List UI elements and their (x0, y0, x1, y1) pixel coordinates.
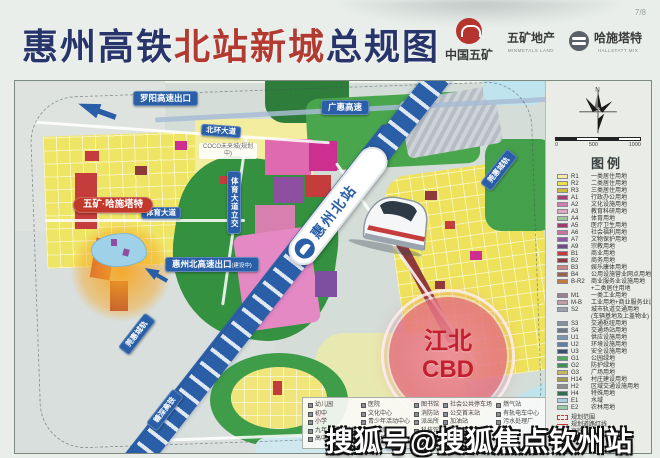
legend-swatch (557, 384, 568, 389)
minmetals-logo: 中国五矿 (445, 18, 493, 63)
facility-item: 燃气站 (496, 402, 539, 410)
legend-code: A3 (571, 209, 588, 215)
minmetals-land-logo: 五矿地产 MINMETALS LAND (507, 29, 555, 53)
legend-item: B-R2 商业服务业设施用地 (557, 278, 652, 285)
legend-item: A1 行政办公用地 (557, 194, 652, 201)
legend-label: 交通场站用地 (591, 328, 627, 334)
legend-item: B1 商业用地 (557, 250, 652, 257)
legend-label: 村庄建设用地 (591, 377, 627, 383)
facility-item: 初中 (308, 411, 357, 419)
facility-icon (361, 403, 366, 408)
minmetals-emblem-icon (456, 18, 482, 44)
legend-item: U2 环境设施用地 (557, 341, 652, 348)
legend-item: E1 水域 (557, 397, 652, 404)
legend-swatch (557, 349, 568, 354)
legend-label: 一类工业用地 (591, 293, 627, 299)
scale-bar: 0 500 1000 (555, 137, 641, 148)
legend-code: H14 (571, 377, 588, 383)
label-north-exit: 惠州北高速出口(建设中) (165, 257, 259, 272)
facility-icon (308, 437, 313, 442)
legend-item: A4 体育用地 (557, 215, 652, 222)
legend-code: A5 (571, 223, 588, 229)
facility-icon (308, 420, 313, 425)
legend-swatch (557, 405, 568, 410)
legend-swatch (557, 335, 568, 340)
legend-item: H2 区域交通设施用地 (557, 383, 652, 390)
legend-label: +二类居住用地 (591, 286, 631, 292)
facility-item: 幼儿园 (308, 402, 357, 410)
scale-500: 500 (589, 142, 598, 148)
legend-swatch (557, 370, 568, 375)
legend-label: 公园绿地 (591, 356, 615, 362)
screenshot-root: 惠州高铁北站新城总规图 7/8 中国五矿 五矿地产 MINMETALS LAND… (0, 0, 660, 458)
legend-item: +二类居住用地 (557, 285, 652, 292)
legend-swatch (557, 342, 568, 347)
legend-swatch (557, 181, 568, 186)
legend-label: 文物保护用地 (591, 237, 627, 243)
legend-swatch (557, 377, 568, 382)
legend-swatch (557, 244, 568, 249)
legend-title: 图例 (591, 153, 623, 172)
minmetals-land-name: 五矿地产 (507, 29, 555, 46)
facility-icon (496, 412, 501, 417)
legend-swatch (557, 188, 568, 193)
legend-item: G2 防护绿地 (557, 362, 652, 369)
legend-item: A3 教育科研用地 (557, 208, 652, 215)
legend-code: B1 (571, 251, 588, 257)
label-tiyu-interchange: 体育大道立交 (227, 171, 241, 234)
legend-item: R1 一类居住用地 (557, 173, 652, 180)
legend-code: G3 (571, 370, 588, 376)
legend-code: H4 (571, 391, 588, 397)
legend-label: 环境设施用地 (591, 342, 627, 348)
legend-item: A5 医疗卫生用地 (557, 222, 652, 229)
sohu-watermark: 搜狐号@搜狐焦点钦州站 (326, 420, 633, 458)
title-part-1: 惠州高铁 (22, 26, 174, 67)
legend-swatch (557, 174, 568, 179)
north-exit-text: 惠州北高速出口 (172, 259, 232, 269)
legend-swatch (557, 279, 568, 284)
facility-icon (443, 403, 448, 408)
scale-bar-rule (555, 137, 641, 141)
legend-label: 三类居住用地 (591, 188, 627, 194)
title-part-3: 总规图 (326, 26, 440, 67)
facility-icon (443, 412, 448, 417)
legend-code: U2 (571, 342, 588, 348)
page-indicator: 7/8 (635, 8, 646, 17)
legend-swatch (557, 328, 568, 333)
legend-code: M1 (571, 293, 588, 299)
legend-code: R1 (571, 174, 588, 180)
legend-item: A9 宗教用地 (557, 243, 652, 250)
legend-label: 行政办公用地 (591, 195, 627, 201)
legend-swatch (557, 363, 568, 368)
legend-swatch (557, 321, 568, 326)
minmetals-name: 中国五矿 (445, 46, 493, 63)
facility-item: 图书馆 (414, 402, 439, 410)
title-part-2: 北站新城 (174, 26, 326, 67)
legend-swatch (557, 272, 568, 277)
legend-code: A9 (571, 244, 588, 250)
legend-item: B3 娱乐康体用地 (557, 264, 652, 271)
hallstatt-emblem-icon (569, 31, 589, 51)
legend-label: (车辆基地及上盖物业) (591, 314, 649, 320)
legend-label: 农林用地 (591, 405, 615, 411)
north-exit-sub: (建设中) (232, 263, 252, 269)
plan-map: 江北 CBD 惠州北站 罗阳高速出口 北环大道 广惠高速 COCO未来城(规划中… (14, 80, 652, 454)
legend-item: R3 三类居住用地 (557, 187, 652, 194)
legend-label: 防护绿地 (591, 363, 615, 369)
legend-item: M-B 工业用地+商业服务业设施用地 (557, 299, 652, 306)
hallstatt-logo: 哈施塔特 HALLSTATT MIX (569, 29, 642, 53)
legend-item: (车辆基地及上盖物业) (557, 313, 652, 320)
legend-swatch (557, 202, 568, 207)
title-bar: 惠州高铁北站新城总规图 7/8 中国五矿 五矿地产 MINMETALS LAND… (0, 0, 660, 80)
legend-swatch (557, 356, 568, 361)
legend-label: 商业用地 (591, 251, 615, 257)
legend-item: S2 城市轨道交通用地 (557, 306, 652, 313)
legend-item: A6 社会福利用地 (557, 229, 652, 236)
legend-label: 商业服务业设施用地 (591, 279, 645, 285)
brand-logos: 中国五矿 五矿地产 MINMETALS LAND 哈施塔特 HALLSTATT … (445, 18, 642, 63)
legend-swatch (557, 293, 568, 298)
minmetals-land-en: MINMETALS LAND (508, 48, 554, 53)
legend-label: 二类居住用地 (591, 181, 627, 187)
legend-code: A4 (571, 216, 588, 222)
legend-item: A7 文物保护用地 (557, 236, 652, 243)
legend-item: G1 公园绿地 (557, 355, 652, 362)
facility-icon (308, 412, 313, 417)
legend-code: B4 (571, 272, 588, 278)
legend-item: S3 交通枢纽用地 (557, 320, 652, 327)
label-luoyang-exit: 罗阳高速出口 (133, 91, 198, 106)
legend-label: 工业用地+商业服务业设施用地 (591, 300, 652, 306)
legend-label: 社会福利用地 (591, 230, 627, 236)
legend-label: 供应设施用地 (591, 335, 627, 341)
facility-icon (308, 429, 313, 434)
legend-item: H14 村庄建设用地 (557, 376, 652, 383)
legend-code: B2 (571, 258, 588, 264)
legend-swatch (557, 265, 568, 270)
legend-item: M1 一类工业用地 (557, 292, 652, 299)
legend-item: U1 供应设施用地 (557, 334, 652, 341)
legend-label: 特殊用地 (591, 391, 615, 397)
legend-item: B4 公用设施营业网点用地 (557, 271, 652, 278)
train-logo-icon (291, 235, 319, 263)
legend-label: 水域 (591, 398, 603, 404)
legend-swatch (557, 398, 568, 403)
legend-label: 商务用地 (591, 258, 615, 264)
legend-code: R2 (571, 181, 588, 187)
legend-item: B2 商务用地 (557, 257, 652, 264)
legend-code: U1 (571, 335, 588, 341)
legend-swatch (557, 300, 568, 305)
hallstatt-name: 哈施塔特 (594, 29, 642, 46)
legend-label: 城市轨道交通用地 (591, 307, 639, 313)
scale-1000: 1000 (629, 142, 641, 148)
legend-item: G3 广场用地 (557, 369, 652, 376)
legend-swatch (557, 216, 568, 221)
facility-item: 消防站 (414, 411, 439, 419)
legend-code: B3 (571, 265, 588, 271)
legend-swatch (557, 230, 568, 235)
legend-code: H2 (571, 384, 588, 390)
facility-icon (414, 403, 419, 408)
legend-code: E2 (571, 405, 588, 411)
legend-item: A2 文化设施用地 (557, 201, 652, 208)
label-wukuang-hallstatt: 五矿·哈施塔特 (73, 197, 153, 213)
legend-code: B-R2 (571, 279, 588, 285)
legend-label: 娱乐康体用地 (591, 265, 627, 271)
legend-code: M-B (571, 300, 588, 306)
legend-label: 体育用地 (591, 216, 615, 222)
cbd-label-line1: 江北 (424, 328, 472, 356)
legend-items: R1 一类居住用地 R2 二类居住用地 R3 三类居住用地 A1 (557, 173, 652, 411)
facility-icon (361, 412, 366, 417)
scale-0: 0 (555, 142, 558, 148)
legend-code: S2 (571, 307, 588, 313)
legend-label: 文化设施用地 (591, 202, 627, 208)
legend-swatch (557, 195, 568, 200)
label-coco: COCO未来城(规划中) (199, 143, 257, 159)
legend-code: S4 (571, 328, 588, 334)
facility-icon (308, 403, 313, 408)
legend-code: A6 (571, 230, 588, 236)
hallstatt-en: HALLSTATT MIX (598, 48, 639, 53)
legend-item: R2 二类居住用地 (557, 180, 652, 187)
legend-code: A7 (571, 237, 588, 243)
label-guanghui-expwy: 广惠高速 (321, 100, 369, 115)
legend-swatch (557, 258, 568, 263)
facility-item: 医院 (361, 402, 410, 410)
legend-label: 公用设施营业网点用地 (591, 272, 651, 278)
legend-code: A2 (571, 202, 588, 208)
legend-label: 宗教用地 (591, 244, 615, 250)
legend-item: H4 特殊用地 (557, 390, 652, 397)
legend-code: R3 (571, 188, 588, 194)
facility-icon (496, 403, 501, 408)
legend-label: 广场用地 (591, 370, 615, 376)
legend-label: 安全设施用地 (591, 349, 627, 355)
legend-swatch (557, 251, 568, 256)
legend-swatch (557, 307, 568, 312)
legend-swatch (557, 209, 568, 214)
legend-code: G2 (571, 363, 588, 369)
legend-code: G1 (571, 356, 588, 362)
legend-swatch (557, 237, 568, 242)
legend-code: E1 (571, 398, 588, 404)
facility-item: 有轨电车中心 (496, 411, 539, 419)
legend-label: 区域交通设施用地 (591, 384, 639, 390)
cbd-label-line2: CBD (422, 356, 474, 384)
facility-icon (414, 412, 419, 417)
legend-swatch (557, 391, 568, 396)
legend-item: E2 农林用地 (557, 404, 652, 411)
legend-code: U3 (571, 349, 588, 355)
legend-item: U3 安全设施用地 (557, 348, 652, 355)
legend-label: 教育科研用地 (591, 209, 627, 215)
legend-item: S4 交通场站用地 (557, 327, 652, 334)
facility-item: 文化中心 (361, 411, 410, 419)
legend-label: 一类居住用地 (591, 174, 627, 180)
legend-swatch (557, 223, 568, 228)
legend-code: A1 (571, 195, 588, 201)
legend-label: 交通枢纽用地 (591, 321, 627, 327)
compass-north-icon: N (575, 85, 621, 140)
facility-item: 社会公共停车场 (443, 402, 492, 410)
page-title: 惠州高铁北站新城总规图 (22, 18, 440, 70)
facility-item: 公交首末站 (443, 411, 492, 419)
legend-code: S3 (571, 321, 588, 327)
legend-label: 医疗卫生用地 (591, 223, 627, 229)
